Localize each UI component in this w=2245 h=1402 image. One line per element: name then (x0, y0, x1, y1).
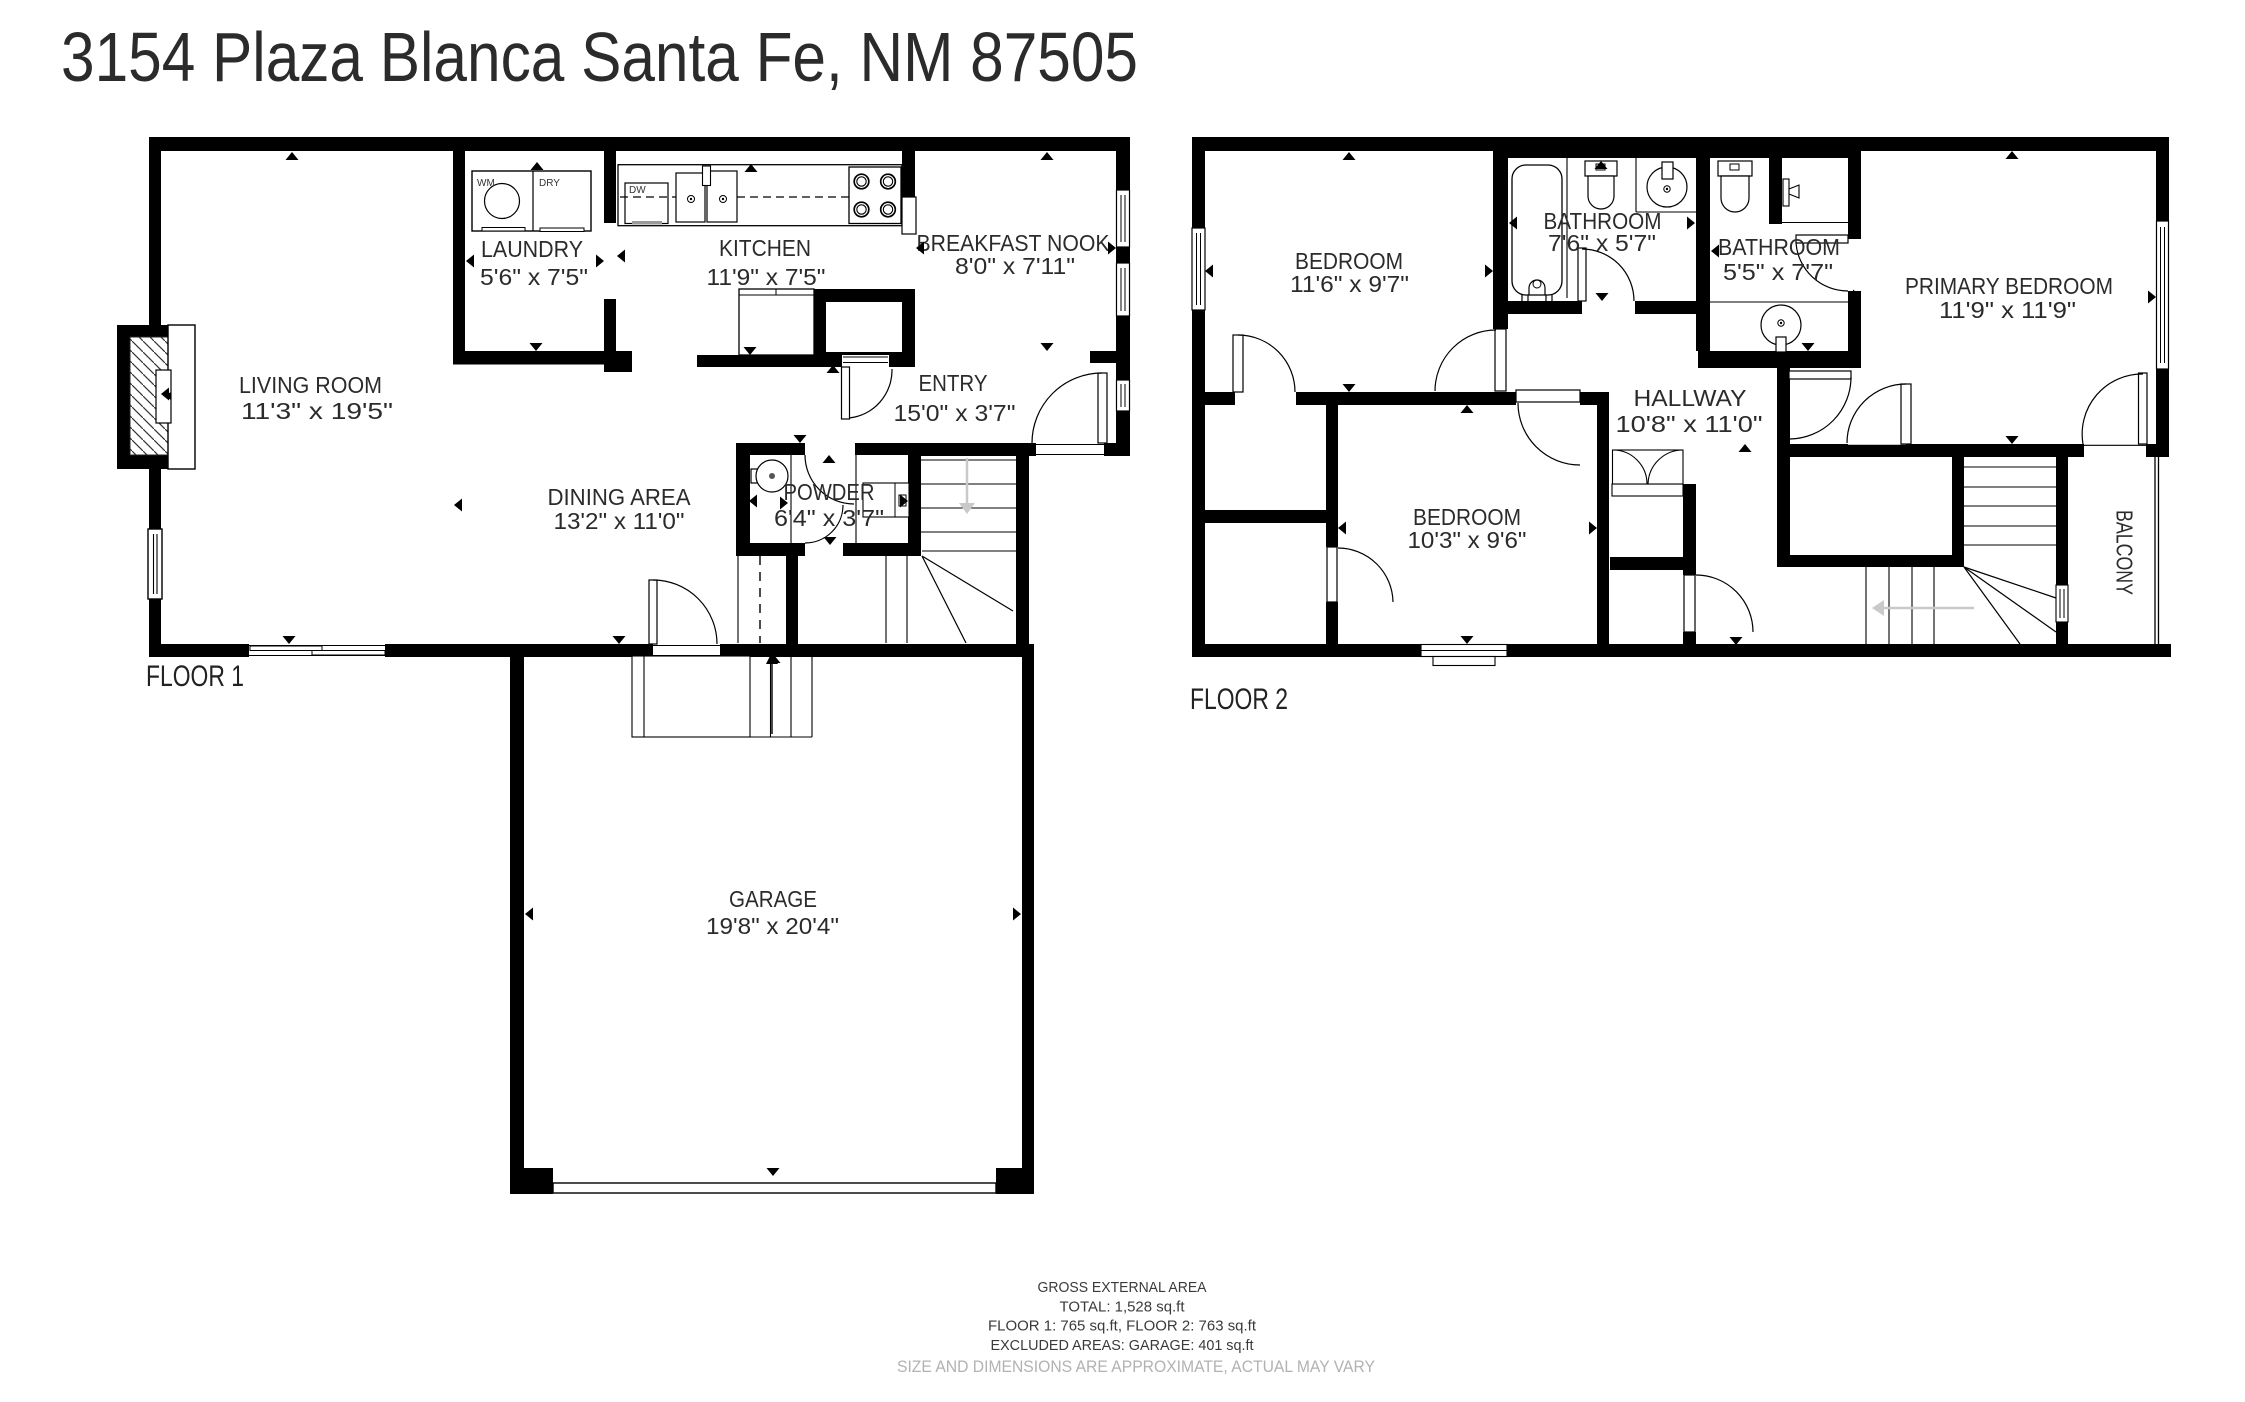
svg-text:WM: WM (477, 178, 495, 189)
svg-text:DINING AREA: DINING AREA (548, 484, 692, 510)
svg-text:FLOOR 2: FLOOR 2 (1190, 683, 1288, 716)
svg-text:TOTAL: 1,528 sq.ft: TOTAL: 1,528 sq.ft (1060, 1299, 1186, 1316)
svg-text:ENTRY: ENTRY (919, 370, 988, 396)
svg-text:8'0" x 7'11": 8'0" x 7'11" (955, 253, 1075, 279)
svg-text:KITCHEN: KITCHEN (719, 235, 811, 261)
svg-text:15'0" x 3'7": 15'0" x 3'7" (894, 400, 1016, 426)
svg-text:FLOOR 1: FLOOR 1 (146, 660, 244, 693)
svg-text:6'4" x 3'7": 6'4" x 3'7" (774, 505, 884, 531)
svg-text:5'6" x 7'5": 5'6" x 7'5" (480, 264, 588, 290)
svg-text:10'3" x 9'6": 10'3" x 9'6" (1408, 527, 1527, 553)
svg-text:DW: DW (629, 185, 646, 196)
svg-text:11'3" x 19'5": 11'3" x 19'5" (241, 398, 393, 424)
svg-text:GARAGE: GARAGE (729, 886, 817, 912)
svg-text:7'6" x 5'7": 7'6" x 5'7" (1548, 230, 1656, 256)
svg-text:10'8" x 11'0": 10'8" x 11'0" (1616, 411, 1763, 437)
svg-text:POWDER: POWDER (784, 479, 875, 505)
svg-text:11'9" x 11'9": 11'9" x 11'9" (1939, 297, 2076, 323)
svg-text:DRY: DRY (539, 178, 560, 189)
svg-text:BALCONY: BALCONY (2112, 510, 2138, 595)
svg-text:3154 Plaza Blanca Santa Fe, NM: 3154 Plaza Blanca Santa Fe, NM 87505 (61, 18, 1138, 96)
svg-text:GROSS EXTERNAL AREA: GROSS EXTERNAL AREA (1038, 1279, 1207, 1296)
svg-text:FLOOR 1: 765 sq.ft, FLOOR 2: 7: FLOOR 1: 765 sq.ft, FLOOR 2: 763 sq.ft (988, 1318, 1257, 1335)
svg-text:HALLWAY: HALLWAY (1634, 385, 1747, 411)
svg-text:19'8" x 20'4": 19'8" x 20'4" (706, 913, 839, 939)
svg-text:5'5" x 7'7": 5'5" x 7'7" (1723, 259, 1833, 285)
svg-text:PRIMARY BEDROOM: PRIMARY BEDROOM (1905, 273, 2113, 299)
svg-text:11'6" x 9'7": 11'6" x 9'7" (1290, 271, 1409, 297)
svg-text:LAUNDRY: LAUNDRY (481, 236, 583, 262)
svg-text:LIVING ROOM: LIVING ROOM (239, 372, 382, 398)
svg-text:SIZE AND DIMENSIONS ARE APPROX: SIZE AND DIMENSIONS ARE APPROXIMATE, ACT… (897, 1357, 1375, 1376)
svg-text:13'2" x 11'0": 13'2" x 11'0" (554, 508, 685, 534)
svg-text:11'9" x 7'5": 11'9" x 7'5" (707, 264, 826, 290)
svg-text:EXCLUDED AREAS: GARAGE: 401 sq: EXCLUDED AREAS: GARAGE: 401 sq.ft (991, 1337, 1255, 1354)
svg-text:BATHROOM: BATHROOM (1718, 234, 1840, 260)
